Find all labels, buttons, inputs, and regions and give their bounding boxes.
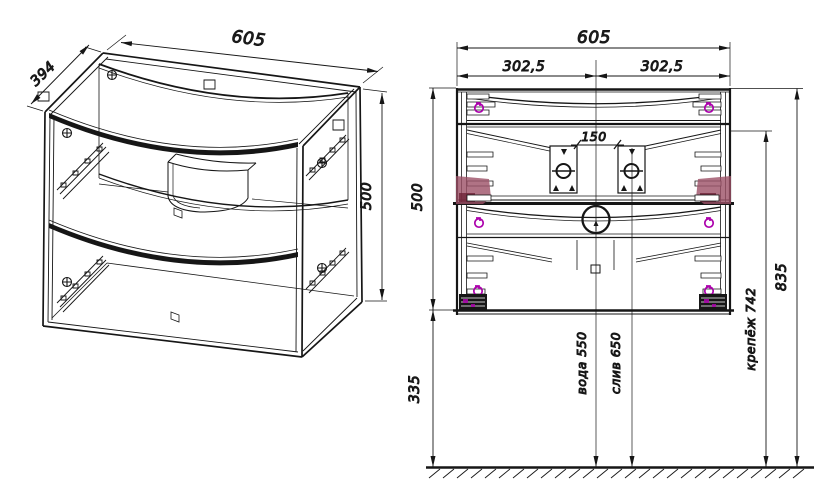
technical-drawing-canvas: 605 394 500 — [0, 0, 819, 504]
fv-mount-height-label: крепёж 742 — [743, 287, 758, 370]
fv-drain-height-label: слив 650 — [608, 332, 623, 394]
fv-corner-blocks — [459, 294, 727, 310]
iso-depth-label: 394 — [28, 59, 59, 90]
fv-body-height-label: 500 — [410, 183, 426, 211]
iso-height-label: 500 — [359, 182, 375, 210]
iso-width-label: 605 — [231, 27, 267, 51]
technical-drawing-page: 605 394 500 — [0, 0, 819, 504]
fv-bottom-drawer — [456, 207, 731, 294]
iso-dimensions: 605 394 500 — [27, 27, 387, 301]
fv-half-right-label: 302,5 — [641, 59, 684, 75]
floor-hatching — [429, 469, 804, 478]
iso-sink-recess — [99, 154, 348, 322]
fv-total-height-label: 835 — [774, 263, 790, 291]
fv-width-label: 605 — [577, 28, 611, 48]
fv-carcass — [453, 88, 734, 315]
isometric-view: 605 394 500 — [27, 27, 387, 357]
floor-line — [426, 468, 814, 479]
fv-half-left-label: 302,5 — [503, 59, 546, 75]
fv-mounting-brackets — [550, 140, 645, 193]
fv-water-height-label: вода 550 — [574, 331, 589, 394]
iso-drawer-slides — [57, 135, 349, 312]
front-view: 605 302,5 302,5 150 500 335 вода 550 сли… — [407, 28, 803, 467]
fv-bracket-span-label: 150 — [581, 129, 606, 144]
fv-floor-gap-label: 335 — [407, 375, 423, 403]
